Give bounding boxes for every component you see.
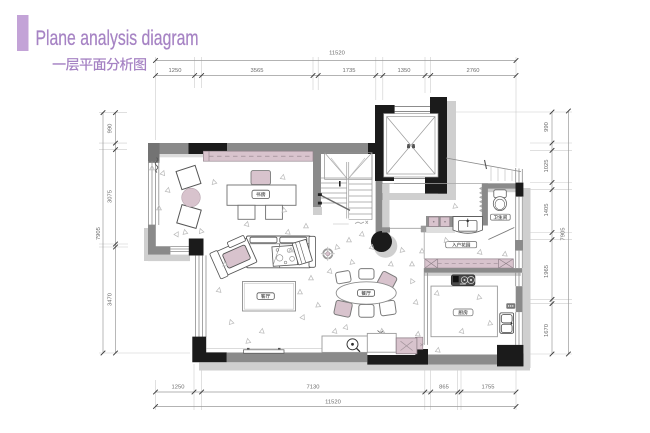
svg-text:1250: 1250 [169, 68, 182, 74]
svg-text:1670: 1670 [544, 324, 550, 337]
svg-text:865: 865 [439, 385, 449, 391]
svg-text:1350: 1350 [398, 68, 411, 74]
svg-text:Plane analysis diagram: Plane analysis diagram [36, 26, 199, 50]
svg-text:1755: 1755 [482, 385, 495, 391]
svg-text:990: 990 [544, 122, 550, 132]
svg-text:3470: 3470 [108, 293, 114, 306]
svg-text:990: 990 [108, 124, 114, 134]
svg-text:1250: 1250 [172, 385, 185, 391]
svg-text:11520: 11520 [325, 400, 341, 406]
svg-text:1025: 1025 [544, 160, 550, 173]
svg-text:1735: 1735 [343, 68, 356, 74]
svg-text:7905: 7905 [561, 228, 567, 241]
svg-text:1965: 1965 [544, 265, 550, 278]
svg-text:3075: 3075 [108, 190, 114, 203]
svg-text:2760: 2760 [467, 68, 480, 74]
svg-text:11520: 11520 [329, 51, 345, 57]
svg-text:7130: 7130 [307, 385, 320, 391]
svg-text:3565: 3565 [251, 68, 264, 74]
svg-text:7905: 7905 [96, 227, 102, 240]
svg-text:1405: 1405 [544, 204, 550, 217]
